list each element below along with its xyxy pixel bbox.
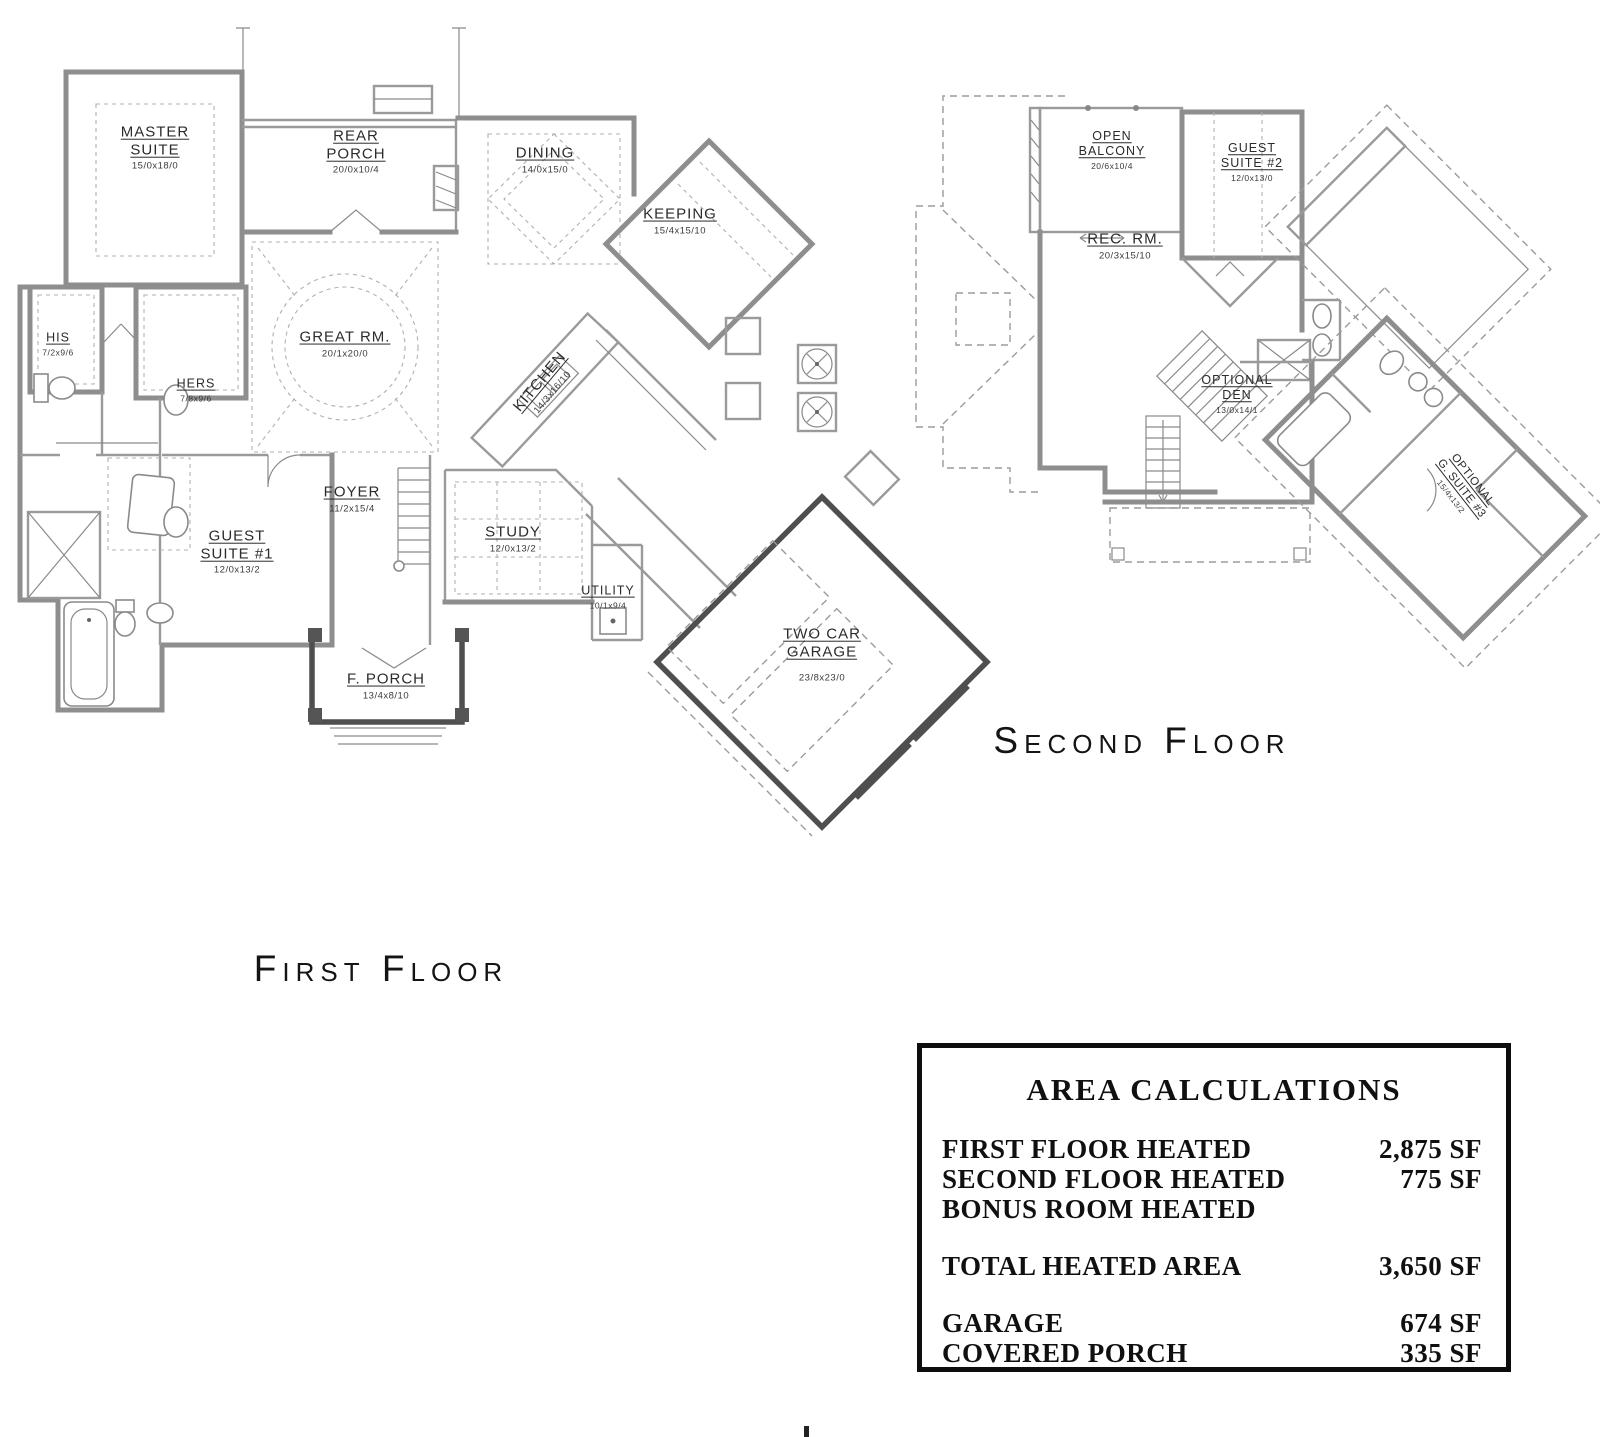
area-row-second-floor-heated: SECOND FLOOR HEATED 775 SF <box>942 1164 1482 1194</box>
room-label-great-rm: GREAT RM. 20/1x20/0 <box>300 329 391 360</box>
floor-plan-sheet: MASTER SUITE 15/0x18/0 REAR PORCH 20/0x1… <box>0 0 1600 1437</box>
registration-tick <box>804 1426 809 1437</box>
room-label-master-suite: MASTER SUITE 15/0x18/0 <box>121 124 190 173</box>
room-label-study: STUDY 12/0x13/2 <box>485 524 541 555</box>
area-row-total-heated-area: TOTAL HEATED AREA 3,650 SF <box>942 1251 1482 1281</box>
area-row-covered-porch: COVERED PORCH 335 SF <box>942 1338 1482 1368</box>
room-label-his: HIS 7/2x9/6 <box>42 331 73 358</box>
room-label-open-balcony: OPEN BALCONY 20/6x10/4 <box>1079 129 1146 171</box>
room-label-foyer: FOYER 11/2x15/4 <box>324 484 381 515</box>
area-calculations-title: AREA CALCULATIONS <box>922 1072 1506 1108</box>
room-label-keeping: KEEPING 15/4x15/10 <box>643 206 717 237</box>
first-floor-title: First Floor <box>254 948 508 990</box>
area-row-first-floor-heated: FIRST FLOOR HEATED 2,875 SF <box>942 1134 1482 1164</box>
area-row-garage: GARAGE 674 SF <box>942 1308 1482 1338</box>
room-label-guest-suite-2: GUEST SUITE #2 12/0x13/0 <box>1221 141 1283 183</box>
room-label-optional-den: OPTIONAL DEN 13/0x14/1 <box>1201 373 1272 415</box>
area-row-bonus-room-heated: BONUS ROOM HEATED <box>942 1194 1482 1224</box>
room-label-dining: DINING 14/0x15/0 <box>516 145 575 176</box>
room-label-rec-rm: REC. RM. 20/3x15/10 <box>1087 231 1163 262</box>
room-label-guest-suite-1: GUEST SUITE #1 12/0x13/2 <box>200 528 273 577</box>
room-label-hers: HERS 7/8x9/6 <box>177 377 216 404</box>
room-label-utility: UTILITY 10/1x9/4 <box>581 584 635 611</box>
room-label-f-porch: F. PORCH 13/4x8/10 <box>347 671 425 702</box>
ceiling-fan-icons <box>798 345 836 431</box>
second-floor-title: Second Floor <box>993 720 1290 762</box>
room-label-rear-porch: REAR PORCH 20/0x10/4 <box>326 128 385 177</box>
area-calculations-table: AREA CALCULATIONS FIRST FLOOR HEATED 2,8… <box>917 1043 1511 1372</box>
room-label-two-car-garage: TWO CAR GARAGE 23/8x23/0 <box>783 626 861 685</box>
